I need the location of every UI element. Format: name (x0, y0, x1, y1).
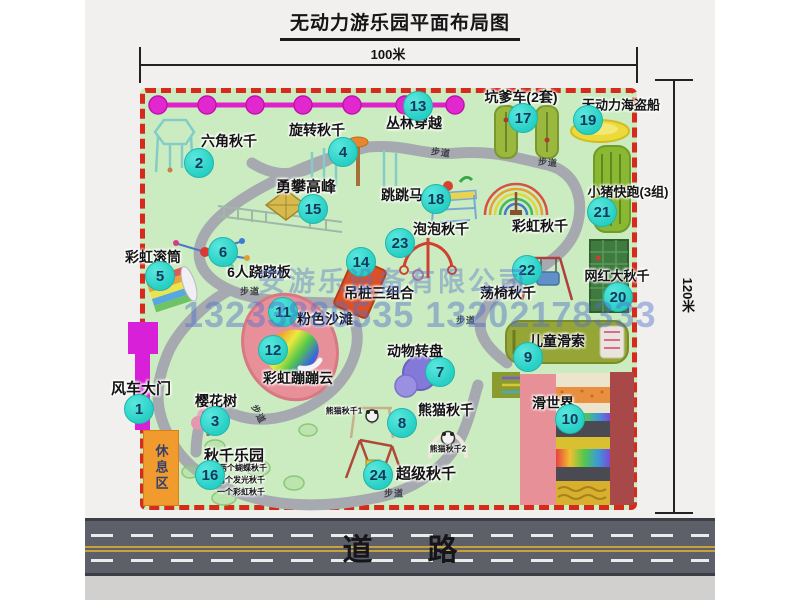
equipment-label-4: 旋转秋千 (289, 120, 345, 140)
watermark-phone: 13233880535 13202178333 (183, 294, 656, 336)
equipment-badge-10: 10 (555, 404, 585, 434)
dimension-height-label: 120米 (678, 278, 697, 313)
equipment-badge-8: 8 (387, 408, 417, 438)
equipment-label-12: 彩虹蹦蹦云 (263, 368, 333, 388)
equipment-label-18: 跳跳马 (381, 185, 423, 205)
equipment-label-15: 勇攀高峰 (276, 176, 336, 197)
footpath-label: 步道 (430, 144, 452, 160)
equipment-badge-4: 4 (328, 137, 358, 167)
road: 道路 (85, 518, 715, 576)
equipment-badge-12: 12 (258, 335, 288, 365)
equipment-badge-18: 18 (421, 184, 451, 214)
equipment-badge-1: 1 (124, 394, 154, 424)
equipment-badge-6: 6 (208, 237, 238, 267)
dimension-tick (636, 47, 638, 83)
footpath-label: 步道 (384, 487, 404, 500)
curb-strip (85, 576, 715, 600)
equipment-badge-19: 19 (573, 105, 603, 135)
equipment-badge-9: 9 (513, 342, 543, 372)
equipment-badge-21: 21 (587, 197, 617, 227)
equipment-badge-7: 7 (425, 357, 455, 387)
equipment-badge-23: 23 (385, 228, 415, 258)
rest-area-label: 休息区 (152, 444, 171, 492)
dimension-line-height (673, 80, 675, 513)
rest-area-zone: 休息区 (143, 430, 179, 506)
equipment-badge-13: 13 (403, 91, 433, 121)
equipment-label-23: 泡泡秋千 (413, 219, 469, 239)
dimension-tick (655, 79, 693, 81)
dimension-width-label: 100米 (371, 44, 406, 63)
dimension-line-width (140, 64, 637, 66)
annotation-label: 彩虹秋千 (512, 216, 568, 236)
equipment-badge-15: 15 (298, 194, 328, 224)
dimension-tick (139, 47, 141, 83)
road-label: 道路 (288, 525, 513, 569)
footpath-label: 步道 (537, 155, 558, 170)
equipment-badge-24: 24 (363, 460, 393, 490)
annotation-label: 一个彩虹秋千 (217, 487, 265, 498)
equipment-label-24: 超级秋千 (396, 463, 456, 484)
equipment-badge-5: 5 (145, 261, 175, 291)
equipment-label-8: 熊猫秋千 (418, 400, 474, 420)
dimension-tick (655, 512, 693, 514)
annotation-label: 熊猫秋千1 (326, 406, 362, 417)
equipment-badge-17: 17 (508, 103, 538, 133)
equipment-label-2: 六角秋千 (201, 131, 257, 151)
equipment-badge-2: 2 (184, 148, 214, 178)
annotation-label: 熊猫秋千2 (430, 444, 466, 455)
page-title: 无动力游乐园平面布局图 (280, 8, 520, 41)
annotation-label: 两个蝴蝶秋千 (219, 463, 267, 474)
park-layout-screenshot: 无动力游乐园平面布局图 100米 120米 (0, 0, 800, 600)
equipment-badge-16: 16 (195, 460, 225, 490)
equipment-badge-3: 3 (200, 406, 230, 436)
